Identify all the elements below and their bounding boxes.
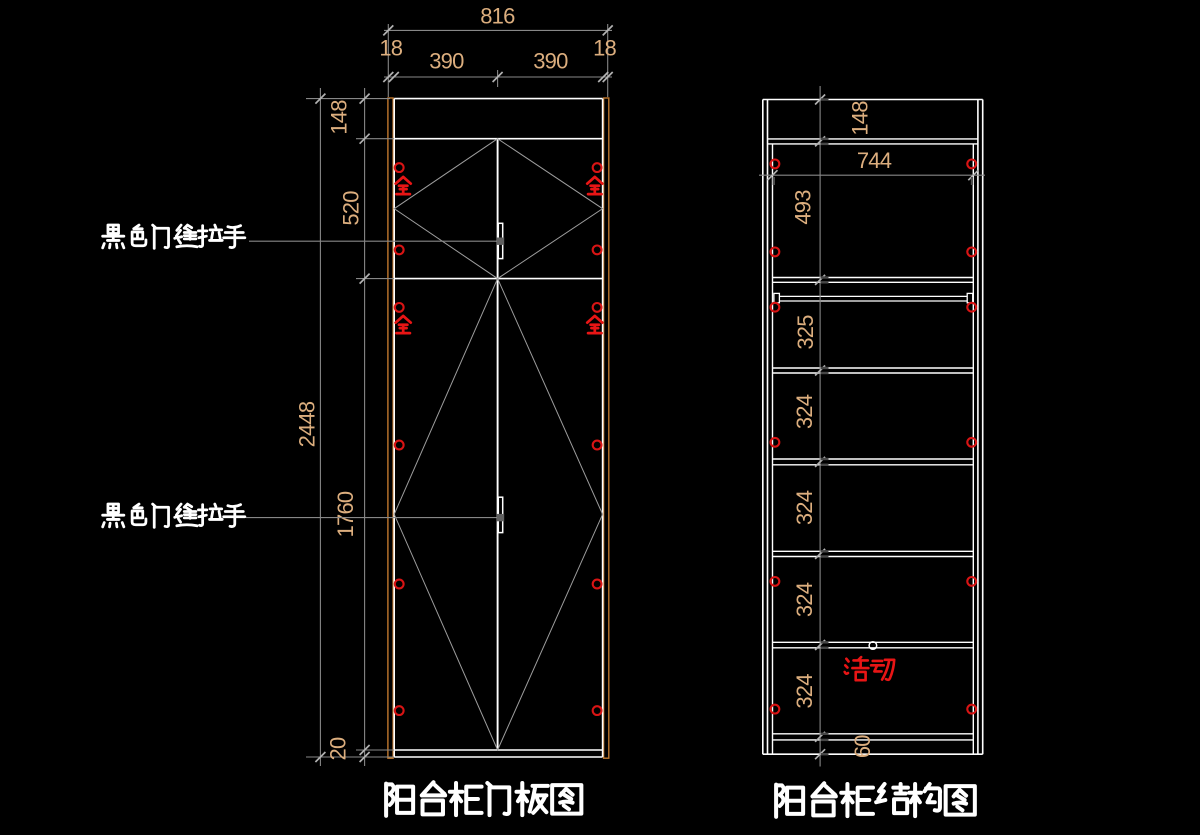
svg-text:493: 493 [790, 190, 815, 225]
svg-text:20: 20 [326, 737, 351, 760]
svg-text:324: 324 [792, 394, 817, 429]
svg-text:148: 148 [326, 100, 351, 135]
svg-text:816: 816 [480, 3, 515, 28]
svg-text:390: 390 [429, 49, 464, 74]
svg-text:744: 744 [857, 148, 892, 173]
svg-text:324: 324 [792, 582, 817, 617]
svg-text:148: 148 [847, 101, 872, 136]
svg-text:18: 18 [379, 36, 402, 61]
svg-text:520: 520 [339, 191, 364, 226]
svg-text:18: 18 [593, 36, 616, 61]
svg-text:324: 324 [792, 490, 817, 525]
svg-text:325: 325 [793, 315, 818, 350]
svg-text:1760: 1760 [333, 491, 358, 537]
svg-text:324: 324 [792, 674, 817, 709]
svg-text:2448: 2448 [295, 401, 320, 447]
svg-text:390: 390 [533, 49, 568, 74]
svg-text:60: 60 [850, 735, 875, 758]
